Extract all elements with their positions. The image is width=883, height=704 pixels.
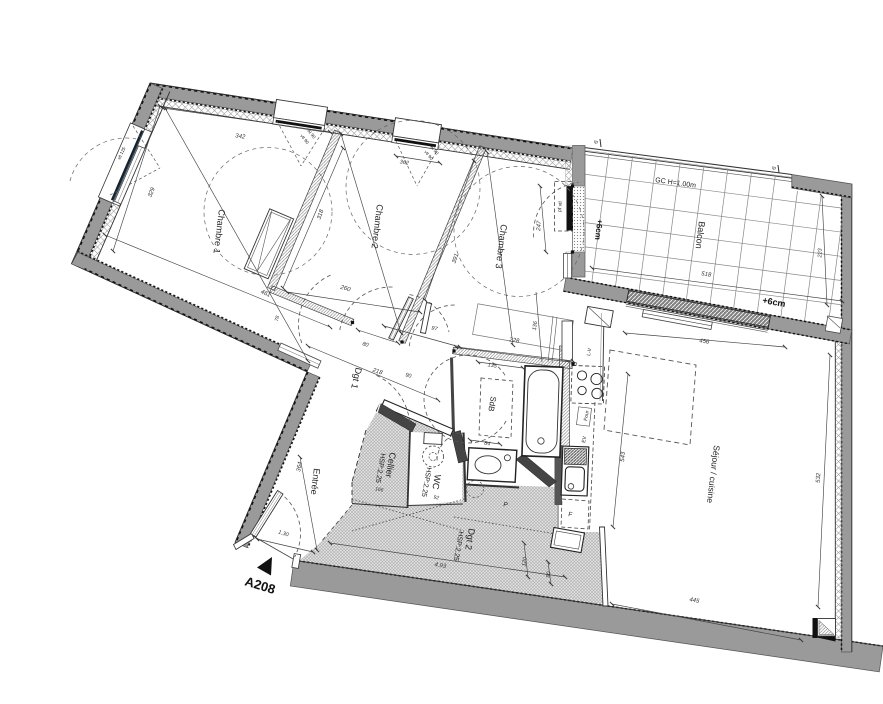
svg-text:pf vtl: pf vtl bbox=[557, 201, 564, 212]
svg-text:532: 532 bbox=[816, 472, 823, 483]
svg-text:84: 84 bbox=[484, 441, 491, 448]
svg-text:247: 247 bbox=[536, 220, 543, 232]
svg-text:543: 543 bbox=[620, 451, 627, 462]
svg-text:223: 223 bbox=[817, 247, 823, 258]
